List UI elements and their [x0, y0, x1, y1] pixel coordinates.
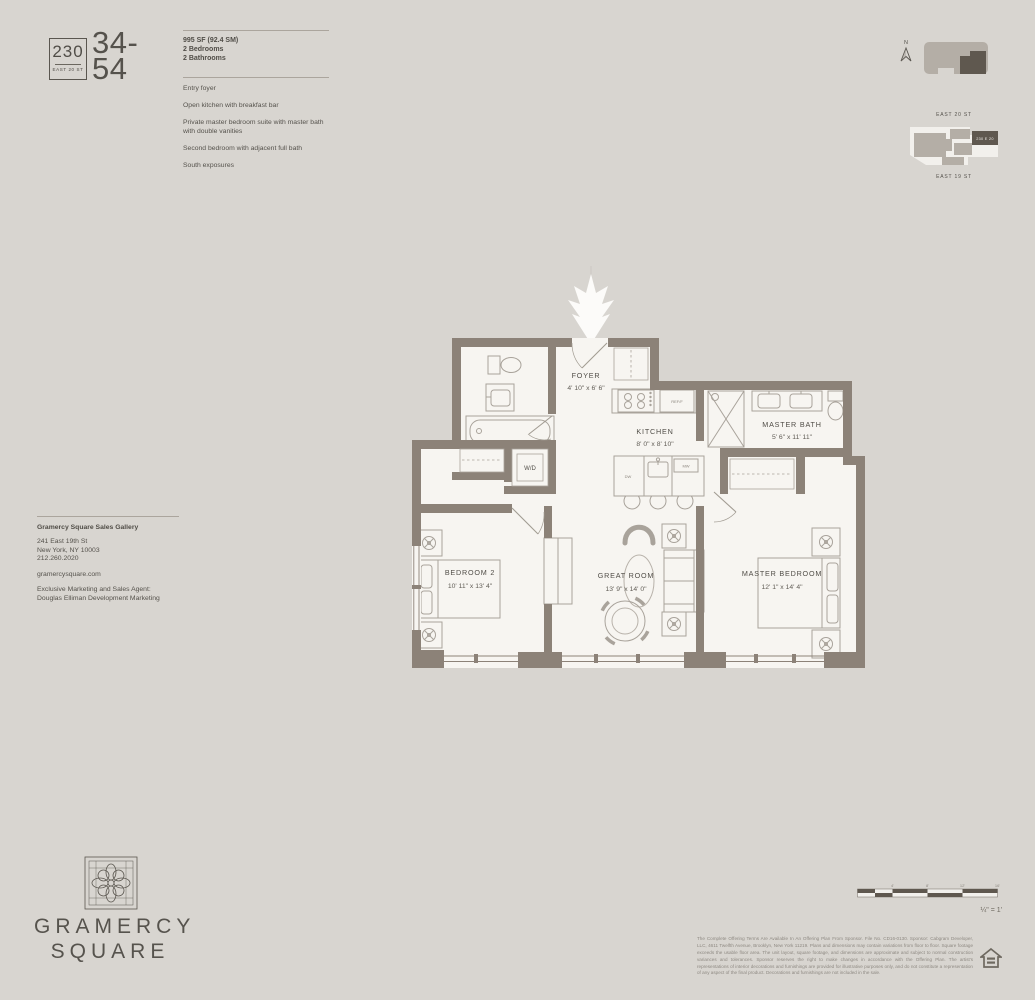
floor-range: 34- 54	[92, 30, 138, 82]
contact-block: Gramercy Square Sales Gallery 241 East 1…	[37, 516, 179, 603]
north-arrow: N	[898, 40, 914, 65]
bedroom2-wardrobe	[544, 538, 572, 604]
master-closet	[730, 459, 794, 489]
scale-tick: 12'	[960, 883, 965, 888]
dishwasher-label: DW	[625, 474, 632, 479]
info-rule-mid	[183, 77, 329, 78]
great-room-dims: 13' 9" x 14' 0"	[605, 586, 647, 593]
address-divider	[55, 64, 81, 65]
north-arrow-icon	[898, 46, 914, 63]
kitchen-dims: 8' 0" x 8' 10"	[636, 441, 674, 448]
bedroom2-label: BEDROOM 2	[445, 568, 495, 577]
washer-dryer-label: W/D	[524, 466, 536, 472]
unit-info: 995 SF (92.4 SM) 2 Bedrooms 2 Bathrooms …	[183, 30, 329, 178]
website-link[interactable]: gramercysquare.com	[37, 571, 179, 580]
building-street: EAST 20 ST	[50, 67, 86, 72]
gallery-title: Gramercy Square Sales Gallery	[37, 524, 179, 531]
gallery-address-line1: 241 East 19th St	[37, 538, 179, 547]
kitchen-label: KITCHEN	[636, 427, 673, 436]
scale-tick: 16'	[995, 883, 1000, 888]
floor-plan: FOYER 4' 10" x 6' 6" KITCHEN 8' 0" x 8' …	[408, 334, 868, 674]
scale-ratio: ¼" = 1'	[900, 907, 1002, 914]
building-address-box: 230 EAST 20 ST	[49, 38, 87, 80]
agent-line2: Douglas Elliman Development Marketing	[37, 595, 179, 604]
info-rule-top	[183, 30, 329, 31]
scale-tick: 4'	[891, 883, 894, 888]
bedroom2-dims: 10' 11" x 13' 4"	[448, 583, 493, 590]
feature-list: Entry foyer Open kitchen with breakfast …	[183, 84, 329, 170]
site-building	[942, 157, 964, 165]
unit-bedrooms: 2 Bedrooms	[183, 45, 329, 54]
master-bedroom-dims: 12' 1" x 14' 4"	[761, 584, 803, 591]
foyer-label: FOYER	[572, 371, 601, 380]
west-window	[412, 546, 421, 630]
master-bath-dims: 5' 6" x 11' 11"	[772, 434, 813, 441]
legal-text: The Complete Offering Terms Are Availabl…	[697, 936, 973, 977]
street-bottom-label: EAST 19 ST	[906, 174, 1002, 180]
microwave-label: MW	[682, 464, 689, 469]
site-building	[954, 143, 972, 155]
site-building	[914, 133, 946, 157]
unit-area: 995 SF (92.4 SM)	[183, 36, 329, 45]
floorplan-sheet: 230 EAST 20 ST 34- 54 995 SF (92.4 SM) 2…	[0, 0, 1035, 1000]
scale-bar: 4' 8' 12' 16'	[856, 882, 1002, 902]
fridge-label: REF/F	[671, 399, 683, 404]
gallery-address-line2: New York, NY 10003	[37, 547, 179, 556]
equal-housing-icon	[980, 947, 1002, 969]
foyer-dims: 4' 10" x 6' 6"	[567, 385, 605, 392]
logo-emblem-icon	[84, 856, 138, 910]
feature-item: South exposures	[183, 161, 329, 170]
gallery-phone: 212.260.2020	[37, 555, 179, 564]
hall-closet	[460, 449, 504, 472]
site-map-unit-label: 230 E 20	[976, 137, 994, 141]
site-building	[946, 139, 952, 151]
contact-rule	[37, 516, 179, 517]
unit-bathrooms: 2 Bathrooms	[183, 54, 329, 63]
street-top-label: EAST 20 ST	[906, 112, 1002, 118]
master-bedroom-label: MASTER BEDROOM	[742, 569, 822, 578]
logo-line2: SQUARE	[34, 939, 186, 964]
building-key-plan	[918, 36, 996, 88]
feature-item: Entry foyer	[183, 84, 329, 93]
feature-item: Private master bedroom suite with master…	[183, 118, 329, 136]
great-room-label: GREAT ROOM	[598, 571, 654, 580]
master-bath-label: MASTER BATH	[762, 420, 821, 429]
logo-line1: GRAMERCY	[34, 914, 186, 939]
site-map: 230 E 20	[906, 121, 1002, 173]
feature-item: Open kitchen with breakfast bar	[183, 101, 329, 110]
site-building	[950, 129, 970, 139]
agent-line1: Exclusive Marketing and Sales Agent:	[37, 586, 179, 595]
scale-tick: 8'	[926, 883, 929, 888]
logo-wordmark: GRAMERCY SQUARE	[34, 914, 186, 964]
feature-item: Second bedroom with adjacent full bath	[183, 144, 329, 153]
building-number: 230	[50, 42, 86, 62]
